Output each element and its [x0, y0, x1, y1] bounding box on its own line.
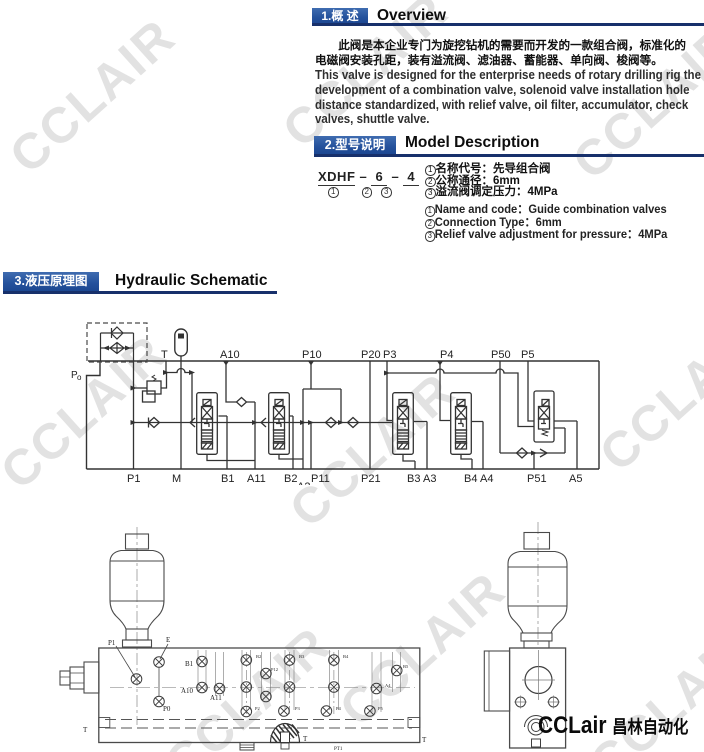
- svg-text:A10: A10: [220, 349, 240, 361]
- svg-text:P0: P0: [163, 705, 171, 713]
- svg-text:A5: A5: [569, 473, 582, 485]
- svg-text:T: T: [303, 735, 308, 743]
- svg-text:P12: P12: [271, 667, 278, 672]
- svg-text:P21: P21: [361, 473, 381, 485]
- svg-text:P3: P3: [295, 706, 301, 711]
- svg-text:B3: B3: [299, 654, 305, 659]
- svg-text:A2: A2: [297, 481, 310, 485]
- svg-text:B2: B2: [284, 473, 297, 485]
- svg-text:P50: P50: [491, 349, 511, 361]
- svg-text:P51: P51: [527, 473, 547, 485]
- svg-text:B4: B4: [343, 654, 349, 659]
- svg-text:T: T: [161, 349, 168, 361]
- svg-text:B2: B2: [256, 654, 261, 659]
- svg-text:P20: P20: [361, 349, 381, 361]
- svg-text:B5: B5: [403, 664, 409, 669]
- svg-text:A4: A4: [480, 473, 493, 485]
- svg-text:B1: B1: [221, 473, 234, 485]
- svg-text:P1: P1: [108, 639, 116, 647]
- svg-text:T: T: [422, 736, 427, 744]
- svg-text:B4: B4: [464, 473, 477, 485]
- svg-text:P4: P4: [336, 706, 342, 711]
- svg-text:P10: P10: [302, 349, 322, 361]
- svg-text:P1: P1: [127, 473, 140, 485]
- svg-text:P4: P4: [440, 349, 453, 361]
- svg-text:P5: P5: [521, 349, 534, 361]
- svg-text:P11: P11: [311, 473, 330, 485]
- svg-text:o: o: [77, 373, 82, 382]
- svg-text:B3: B3: [407, 473, 420, 485]
- svg-text:A11: A11: [247, 473, 266, 485]
- svg-text:P3: P3: [383, 349, 396, 361]
- svg-text:P2: P2: [255, 706, 260, 711]
- svg-text:E: E: [166, 636, 170, 644]
- svg-text:P5: P5: [378, 706, 384, 711]
- svg-text:M: M: [172, 473, 181, 485]
- svg-text:T: T: [83, 726, 88, 734]
- svg-text:PT1: PT1: [334, 747, 343, 752]
- svg-text:A4: A4: [385, 683, 391, 688]
- svg-text:B1: B1: [185, 660, 194, 668]
- svg-text:A10: A10: [181, 687, 194, 695]
- svg-text:A11: A11: [210, 694, 222, 702]
- svg-text:A3: A3: [423, 473, 436, 485]
